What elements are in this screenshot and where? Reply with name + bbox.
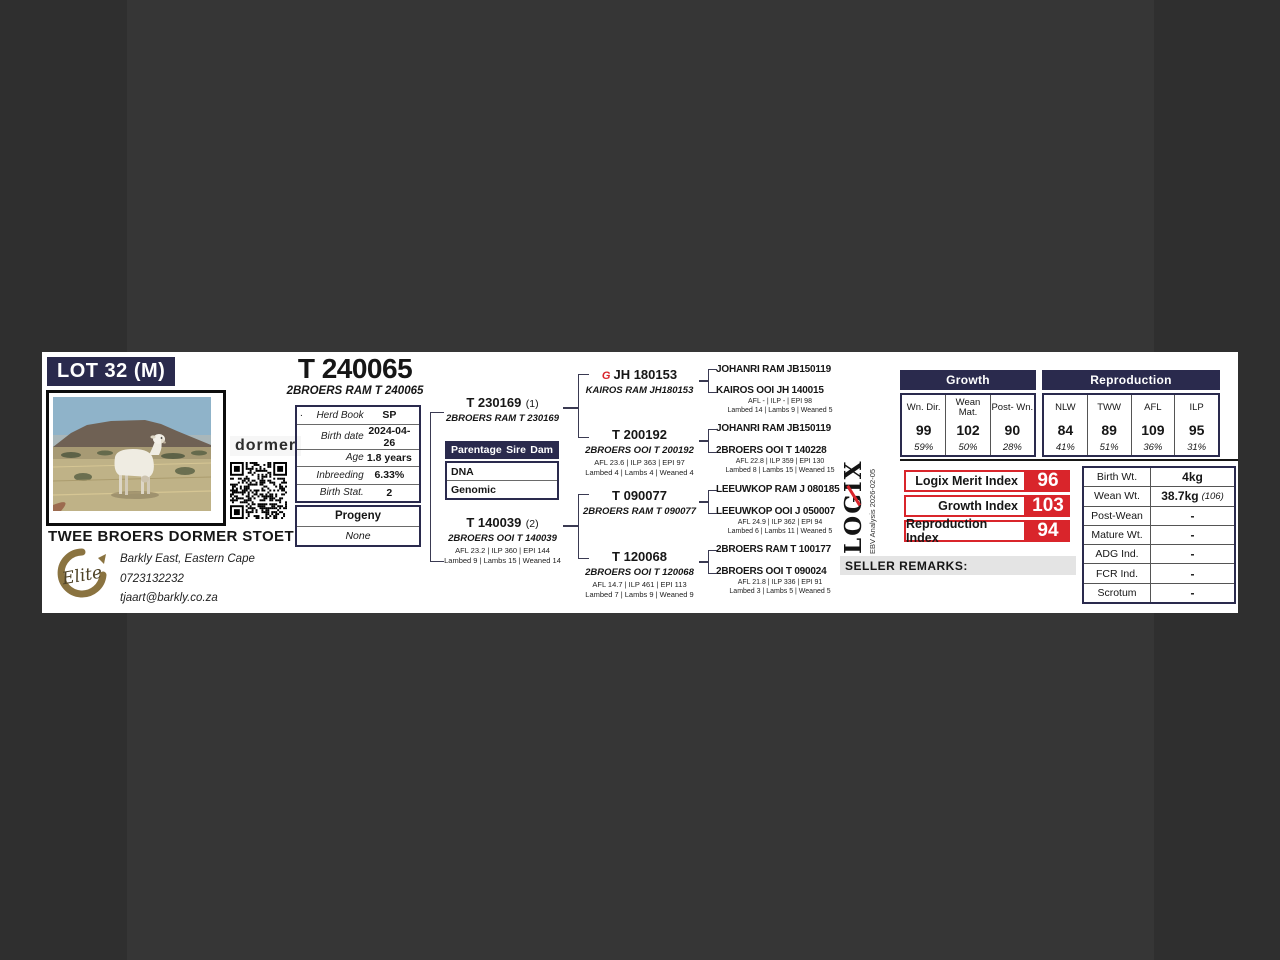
sire-col-label: Sire (506, 444, 526, 456)
sire-name: 2BROERS RAM T 230169 (440, 413, 565, 424)
inbreeding-label: Inbreeding (301, 470, 364, 481)
index-label: Reproduction Index (904, 520, 1026, 542)
birth-status-label: Birth Stat. (301, 487, 364, 498)
kairos-stud-icon: G (602, 370, 611, 382)
ebv-analysis-date: EBV Analysis 2026-02-05 (868, 462, 877, 554)
herd-book-label: Herd Book (301, 410, 364, 421)
animal-full-name: 2BROERS RAM T 240065 (260, 385, 450, 397)
lot-number-badge: LOT 32 (M) (47, 357, 175, 386)
pedigree-bracket (430, 412, 444, 562)
pedigree-connector (563, 525, 578, 527)
weights-table: Birth Wt. 4kg Wean Wt. 38.7kg(106) Post-… (1082, 466, 1236, 604)
age-value: 1.8 years (364, 452, 415, 464)
table-row: Birth date 2024-04-26 (297, 424, 419, 449)
pedigree-bracket (708, 429, 717, 453)
inbreeding-value: 6.33% (364, 469, 415, 481)
pedigree-granddam-paternal: T 200192 2BROERS OOI T 200192 AFL 23.6 |… (577, 426, 702, 478)
progeny-box: Progeny None (295, 505, 421, 547)
pedigree-granddam-maternal: T 120068 2BROERS OOI T 120068 AFL 14.7 |… (577, 548, 702, 600)
pedigree-great-grandparent: JOHANRI RAM JB150119 (716, 364, 844, 375)
table-row: Mature Wt. - (1084, 525, 1234, 544)
ebv-cell: Wn. Dir. 99 59% (902, 395, 945, 455)
pedigree-great-grandparent: 2BROERS OOI T 090024 AFL 21.8 | ILP 336 … (716, 566, 844, 597)
table-row: Wean Wt. 38.7kg(106) (1084, 486, 1234, 505)
table-row: FCR Ind. - (1084, 563, 1234, 582)
pedigree-bracket (578, 494, 589, 559)
pedigree-connector (699, 440, 708, 442)
herd-info-table: . Herd Book SP Birth date 2024-04-26 Age… (295, 405, 421, 503)
logix-logo: LOGIX (840, 462, 866, 554)
animal-photo (46, 390, 226, 526)
ebv-cell: ILP 95 31% (1174, 395, 1218, 455)
pedigree-grandsire-maternal: T 090077 2BROERS RAM T 090077 (577, 487, 702, 517)
logix-merit-index-row: Logix Merit Index 96 (904, 470, 1074, 492)
screen-background: LOT 32 (M) (0, 0, 1280, 960)
index-value: 96 (1026, 470, 1070, 492)
birth-status-value: 2 (364, 487, 415, 499)
table-row: Age 1.8 years (297, 449, 419, 467)
qr-code (230, 462, 287, 519)
breeder-contact: Barkly East, Eastern Cape 0723132232 tja… (120, 550, 255, 609)
age-label: Age (301, 452, 364, 463)
section-divider (900, 459, 1238, 461)
birth-date-value: 2024-04-26 (364, 425, 415, 449)
dam-col-label: Dam (530, 444, 553, 456)
ebv-cell: TWW 89 51% (1087, 395, 1131, 455)
sire-tag: (1) (526, 398, 539, 410)
pedigree-dam: T 140039 (2) 2BROERS OOI T 140039 AFL 23… (440, 514, 565, 566)
parentage-table: DNA Genomic (445, 461, 559, 500)
birth-date-label: Birth date (301, 431, 364, 442)
pedigree-connector (699, 380, 708, 382)
reproduction-ebv-table: NLW 84 41% TWW 89 51% AFL 109 36% ILP 95… (1042, 393, 1220, 457)
herd-book-marker: . (300, 408, 303, 419)
dormer-logo: dormer (230, 436, 301, 456)
progeny-title: Progeny (297, 507, 419, 527)
dam-stats: AFL 23.2 | ILP 360 | EPI 144 Lambed 9 | … (440, 546, 565, 566)
ebv-cell: AFL 109 36% (1131, 395, 1175, 455)
parentage-header: Parentage Sire Dam (445, 441, 559, 459)
table-row: Inbreeding 6.33% (297, 466, 419, 484)
elite-stud-logo: Elite (54, 546, 110, 604)
sheep-photo-illustration (53, 397, 211, 511)
herd-book-value: SP (364, 409, 415, 421)
parentage-row-genomic: Genomic (447, 480, 557, 498)
pedigree-bracket (708, 550, 717, 574)
dam-id: T 140039 (466, 515, 521, 530)
pedigree-grandsire-paternal: GJH 180153 KAIROS RAM JH180153 (577, 366, 702, 396)
pedigree-great-grandparent: KAIROS OOI JH 140015 AFL - | ILP - | EPI… (716, 385, 844, 416)
sire-id: T 230169 (466, 395, 521, 410)
index-label: Growth Index (904, 495, 1026, 517)
progeny-value: None (297, 527, 419, 546)
reproduction-index-row: Reproduction Index 94 (904, 520, 1074, 542)
table-row: Post-Wean - (1084, 506, 1234, 525)
ebv-cell: NLW 84 41% (1044, 395, 1087, 455)
pedigree-sire: T 230169 (1) 2BROERS RAM T 230169 (440, 394, 565, 424)
growth-ebv-table: Wn. Dir. 99 59% Wean Mat. 102 50% Post- … (900, 393, 1036, 457)
pedigree-great-grandparent: JOHANRI RAM JB150119 (716, 423, 844, 434)
pedigree-great-grandparent: 2BROERS RAM T 100177 (716, 544, 844, 555)
pedigree-great-grandparent: LEEUWKOP OOI J 050007 AFL 24.9 | ILP 362… (716, 506, 844, 537)
table-row: . Herd Book SP (297, 407, 419, 424)
parentage-col-label: Parentage (451, 444, 502, 456)
table-row: Birth Stat. 2 (297, 484, 419, 502)
parentage-row-dna: DNA (447, 463, 557, 480)
pedigree-bracket (708, 369, 717, 393)
dam-name: 2BROERS OOI T 140039 (440, 533, 565, 544)
index-value: 94 (1026, 520, 1070, 542)
animal-id-title: T 240065 (280, 353, 430, 385)
breeder-phone: 0723132232 (120, 570, 255, 590)
growth-index-row: Growth Index 103 (904, 495, 1074, 517)
qr-code-icon (230, 462, 287, 519)
table-row: Birth Wt. 4kg (1084, 468, 1234, 486)
pedigree-bracket (708, 490, 717, 514)
pedigree-bracket (578, 374, 589, 438)
pedigree-great-grandparent: LEEUWKOP RAM J 080185 (716, 484, 844, 495)
pedigree-connector (699, 501, 708, 503)
catalog-card: LOT 32 (M) (42, 352, 1238, 613)
elite-logo-icon: Elite (54, 546, 110, 604)
ebv-cell: Wean Mat. 102 50% (945, 395, 989, 455)
reproduction-header: Reproduction (1042, 370, 1220, 390)
breeder-name: TWEE BROERS DORMER STOET (48, 528, 294, 545)
ebv-cell: Post- Wn. 90 28% (990, 395, 1034, 455)
breeder-location: Barkly East, Eastern Cape (120, 550, 255, 570)
seller-remarks-bar: SELLER REMARKS: (840, 556, 1076, 575)
growth-header: Growth (900, 370, 1036, 390)
pedigree-connector (563, 407, 578, 409)
table-row: Scrotum - (1084, 583, 1234, 602)
breeder-email: tjaart@barkly.co.za (120, 589, 255, 609)
index-label: Logix Merit Index (904, 470, 1026, 492)
pedigree-great-grandparent: 2BROERS OOI T 140228 AFL 22.8 | ILP 359 … (716, 445, 844, 476)
dam-tag: (2) (526, 518, 539, 530)
pedigree-connector (699, 561, 708, 563)
table-row: ADG Ind. - (1084, 544, 1234, 563)
index-value: 103 (1026, 495, 1070, 517)
